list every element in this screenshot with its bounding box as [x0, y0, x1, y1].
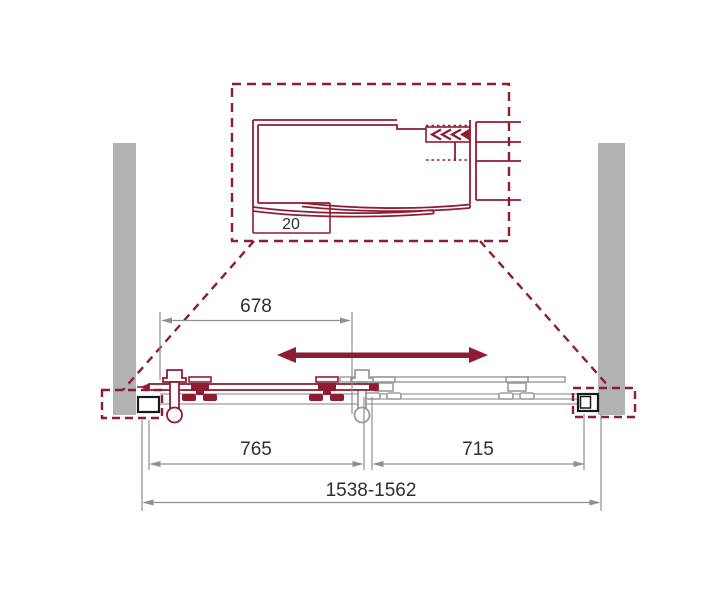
wall-right: [598, 143, 625, 415]
arrowhead-right-icon: [574, 461, 585, 467]
arrowhead-right-icon: [590, 500, 601, 506]
wall-profile-left: [138, 397, 159, 412]
bottom-seal-blades: [253, 203, 470, 217]
roller-plate: [373, 377, 395, 382]
roller-wheel: [387, 393, 401, 399]
roller-wheel: [520, 393, 534, 399]
dimension-top-width-label: 678: [240, 296, 272, 317]
roller-plate: [189, 377, 211, 382]
rail-end-cap: [369, 384, 378, 390]
roller-wheel: [309, 394, 323, 401]
arrowhead-left-icon: [150, 461, 161, 467]
bracket-knob: [355, 408, 370, 423]
seal-arrow-tip: [460, 129, 469, 140]
arrowhead-left-icon: [143, 500, 154, 506]
roller-axle: [196, 391, 204, 395]
arrowhead-right-icon: [340, 318, 351, 324]
leader-line-right: [480, 241, 610, 388]
dimension-overall-label: 1538-1562: [326, 480, 417, 501]
roller-plate: [316, 377, 338, 382]
profile-outline: [253, 120, 521, 208]
detail-callout-frame: [232, 84, 509, 241]
wall-left: [113, 143, 136, 415]
dimension-top-width: 678: [161, 296, 351, 324]
roller-wheel: [366, 393, 380, 399]
roller-plate: [506, 377, 528, 382]
roller-wheel: [330, 394, 344, 401]
slide-direction-arrow-icon: [277, 347, 488, 363]
wall-profile-right: [578, 394, 598, 411]
bracket-cap: [163, 370, 186, 382]
arrowhead-left-icon: [373, 461, 384, 467]
dimension-overall: 1538-1562: [143, 480, 601, 506]
arrowhead-right-icon: [353, 461, 364, 467]
roller-wheel: [203, 394, 217, 401]
bracket-knob: [167, 408, 182, 423]
leader-line-left: [123, 241, 254, 390]
rail-bar: [149, 384, 378, 390]
roller-body: [191, 383, 209, 391]
roller-wheel: [182, 394, 196, 401]
arrow-shaft: [293, 353, 472, 359]
roller-body: [508, 383, 526, 391]
arrowhead-left-icon: [161, 318, 172, 324]
dimension-left-panel-label: 765: [240, 439, 272, 460]
arrow-head-right: [469, 347, 488, 363]
roller-body: [318, 383, 336, 391]
roller-wheel: [499, 393, 513, 399]
arrow-head-left: [277, 347, 296, 363]
dimension-right-panel: 715: [373, 439, 585, 467]
detail-adjustment-label: 20: [282, 216, 300, 233]
installation-drawing: 20: [0, 0, 720, 600]
bracket-cap: [351, 370, 373, 382]
seal-chevrons-icon: [432, 130, 461, 140]
drawing-canvas: 20: [0, 0, 720, 600]
dimension-left-panel: 765: [150, 439, 364, 467]
bracket-stem: [170, 382, 179, 408]
roller-axle: [323, 391, 331, 395]
detail-view: 20: [232, 84, 521, 241]
dimension-right-panel-label: 715: [462, 439, 494, 460]
